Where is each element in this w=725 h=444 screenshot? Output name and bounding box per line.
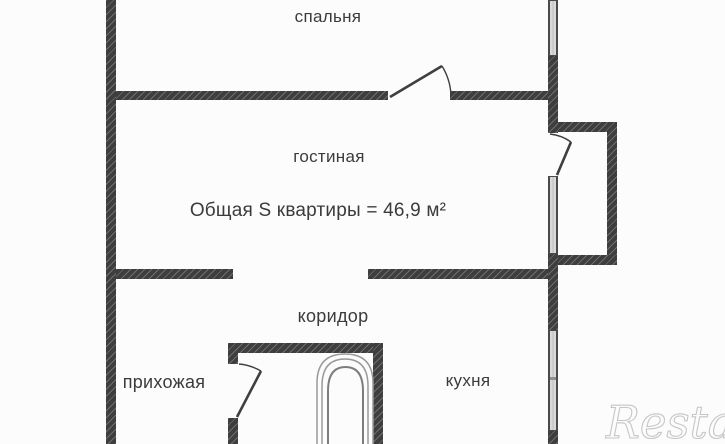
living-room-label: гостиная xyxy=(293,147,365,167)
bedroom-door-arc xyxy=(442,66,451,95)
bedroom-label: спальня xyxy=(295,7,362,27)
kitchen-label: кухня xyxy=(446,371,491,391)
fixtures-layer xyxy=(0,0,725,444)
bedroom-door-leaf xyxy=(390,66,442,97)
total-area-label: Общая S квартиры = 46,9 м² xyxy=(190,200,446,222)
bathtub-inner-basin xyxy=(328,367,363,444)
balcony-door-leaf xyxy=(557,142,571,175)
corridor-label: коридор xyxy=(298,306,369,327)
hallway-label: прихожая xyxy=(123,372,206,393)
floor-plan: спальня гостиная Общая S квартиры = 46,9… xyxy=(0,0,725,444)
bathroom-door-arc xyxy=(239,364,261,371)
balcony-door-arc xyxy=(550,134,571,142)
watermark-logo: Restate xyxy=(606,396,725,444)
bathroom-door-leaf xyxy=(237,371,261,417)
